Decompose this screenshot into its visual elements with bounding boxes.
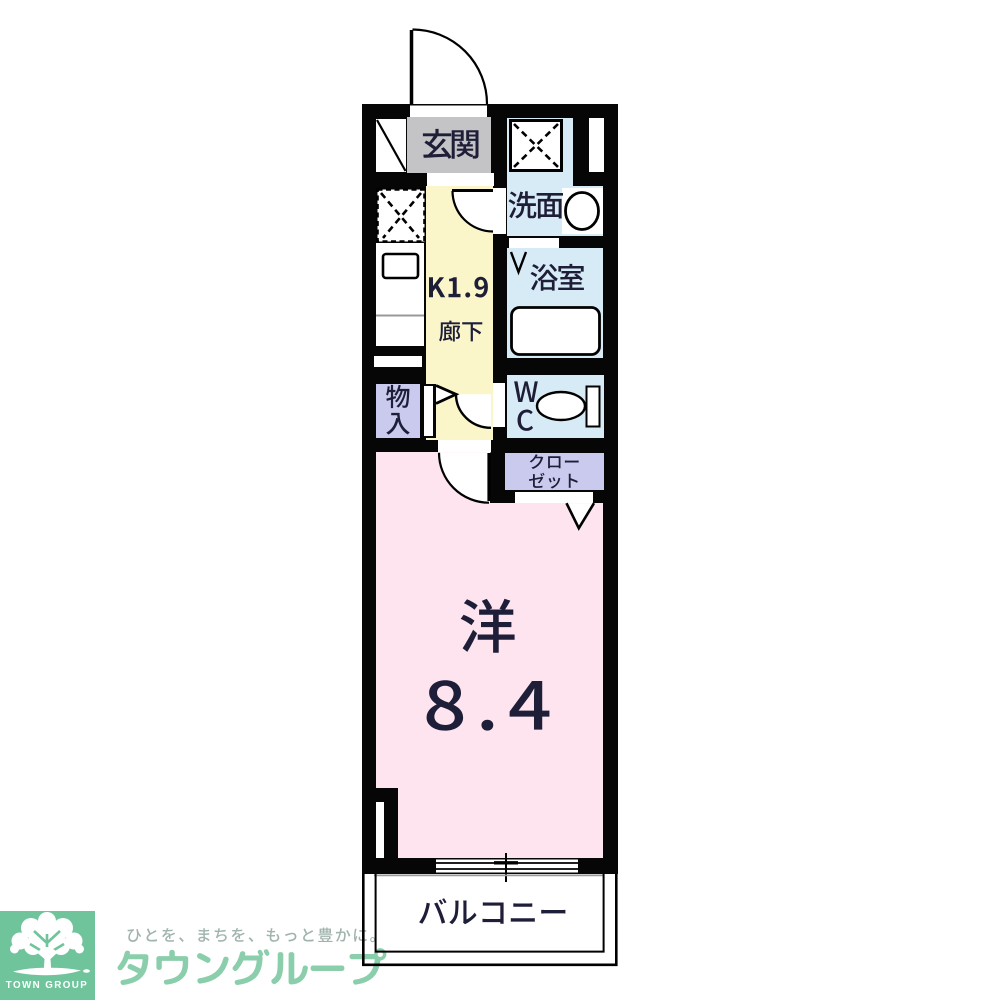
svg-text:TOWN GROUP: TOWN GROUP <box>6 980 88 991</box>
